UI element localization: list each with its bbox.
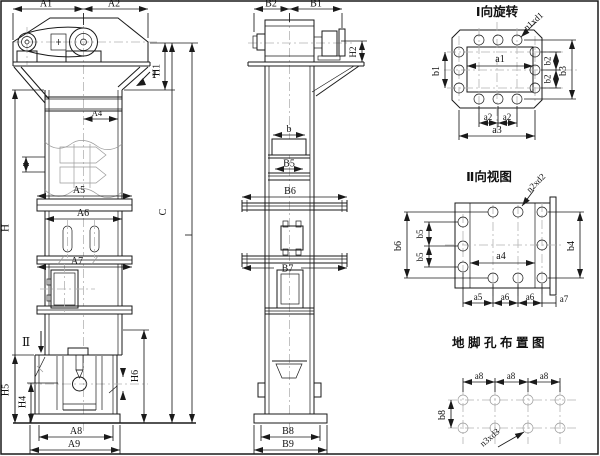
dim-label-B5: B5 xyxy=(283,159,295,170)
dim-label-B9: B9 xyxy=(282,439,294,450)
dim-label-H: H xyxy=(0,224,12,232)
dim-label-H4: H4 xyxy=(18,396,29,408)
dim-label-B6: B6 xyxy=(284,186,296,197)
dim-label-b4: b4 xyxy=(566,241,577,251)
flange-B7-side xyxy=(242,253,347,267)
dimensions-side: B2 B1 H2 b B5 B6 B7 B8 B9 xyxy=(242,0,367,454)
dim-label-a8: a8 xyxy=(475,371,484,381)
dim-label-b8: b8 xyxy=(437,410,448,420)
view-marker-I: Ⅰ xyxy=(152,69,156,81)
sheet-border xyxy=(1,1,598,454)
dim-label-A6: A6 xyxy=(77,208,89,219)
dim-label-A5: A5 xyxy=(73,185,85,196)
anchor-holes xyxy=(458,395,565,433)
dim-label-a1: a1 xyxy=(495,54,504,65)
dim-label-A2: A2 xyxy=(108,0,120,10)
front-view: A1 A2 A4 A5 A6 A7 A8 A9 H H5 xyxy=(0,0,198,454)
dim-label-b2b: b2 xyxy=(543,75,553,84)
dim-label-A9: A9 xyxy=(68,439,80,450)
dim-label-b3: b3 xyxy=(558,66,569,76)
view-I-dims: b1 a1 b2 b2 b3 a2 a2 a3 xyxy=(431,40,576,140)
view-marker-II: Ⅱ xyxy=(22,335,30,349)
dim-label-B8: B8 xyxy=(282,426,294,437)
dim-label-a5: a5 xyxy=(474,292,483,302)
mid-plate-side xyxy=(281,221,303,255)
boot-front xyxy=(13,348,196,423)
dimensions-front: A1 A2 A4 A5 A6 A7 A8 A9 H H5 xyxy=(0,0,198,454)
dim-label-a2b: a2 xyxy=(503,112,512,122)
dim-label-a8b: a8 xyxy=(507,371,516,381)
flange-II-side xyxy=(242,200,347,212)
dim-label-H6: H6 xyxy=(130,370,141,382)
dim-label-A4: A4 xyxy=(92,108,103,118)
dim-label-B1: B1 xyxy=(310,0,322,10)
elevator-drawing: A1 A2 A4 A5 A6 A7 A8 A9 H H5 xyxy=(0,0,600,456)
drawing-sheet: A1 A2 A4 A5 A6 A7 A8 A9 H H5 xyxy=(0,0,600,456)
side-view: B2 B1 H2 b B5 B6 B7 B8 B9 xyxy=(242,0,367,454)
dim-label-a6: a6 xyxy=(501,292,510,302)
anchor-plan: 地脚孔布置图 a8 a8 a8 b8 n3xd3 xyxy=(437,335,576,449)
dim-label-a7: a7 xyxy=(560,294,569,304)
dim-label-a2: a2 xyxy=(484,112,493,122)
dim-label-B7: B7 xyxy=(282,264,294,275)
dim-label-a6b: a6 xyxy=(526,292,535,302)
dim-label-H5: H5 xyxy=(1,384,12,396)
dim-label-a8c: a8 xyxy=(540,371,549,381)
dim-label-b2: b2 xyxy=(543,57,553,66)
dim-label-H2: H2 xyxy=(348,47,358,58)
view-II-title: Ⅱ向视图 xyxy=(466,169,512,184)
view-II-hole-callout: n2xd2 xyxy=(524,171,547,194)
dim-label-A7: A7 xyxy=(71,256,83,267)
view-I-title: Ⅰ向旋转 xyxy=(476,4,519,19)
dim-label-a3: a3 xyxy=(492,125,501,136)
view-II: Ⅱ向视图 n2xd2 b6 b5 b5 xyxy=(393,169,584,307)
anchor-dims: a8 a8 a8 b8 n3xd3 xyxy=(437,371,560,449)
dim-label-b6: b6 xyxy=(393,241,404,251)
dim-label-A1: A1 xyxy=(40,0,52,10)
view-II-dims: b6 b5 b5 a4 b4 a5 a6 a6 a7 xyxy=(393,212,584,307)
view-I: Ⅰ向旋转 n1xd1 b1 a1 b2 xyxy=(431,4,578,140)
anchor-plan-title: 地脚孔布置图 xyxy=(452,335,548,350)
dim-label-B2: B2 xyxy=(265,0,277,10)
dim-label-b: b xyxy=(287,124,292,135)
dim-label-C: C xyxy=(158,208,169,215)
dim-label-b5b: b5 xyxy=(415,252,425,262)
dim-label-A8: A8 xyxy=(70,426,82,437)
dim-label-b1: b1 xyxy=(431,66,442,76)
dim-label-a4: a4 xyxy=(496,251,505,262)
dim-label-b5: b5 xyxy=(415,229,425,239)
view-I-hole-callout: n1xd1 xyxy=(522,10,545,32)
